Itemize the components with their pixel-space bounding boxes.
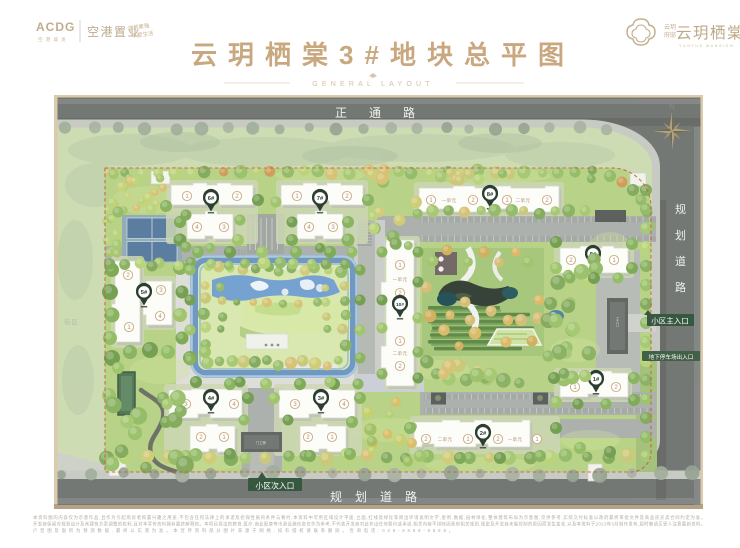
svg-text:本资料图的内容仅为示意作品,且作为引起购房者购置兴趣之用途,: 本资料图的内容仅为示意作品,且作为引起购房者购置兴趣之用途,不包含任何法律上的承… — [33, 514, 705, 521]
svg-text:淡然素雅: 淡然素雅 — [127, 21, 150, 32]
svg-text:YUNYUE MANSION: YUNYUE MANSION — [679, 44, 734, 48]
svg-text:ACDG: ACDG — [36, 20, 75, 34]
svg-text:云玥栖棠3#地块总平图: 云玥栖棠3#地块总平图 — [191, 40, 575, 70]
svg-text:云玥栖棠: 云玥栖棠 — [676, 24, 740, 42]
svg-text:云玥: 云玥 — [664, 24, 676, 31]
svg-text:空港城发: 空港城发 — [38, 36, 69, 43]
svg-text:GENERAL LAYOUT: GENERAL LAYOUT — [312, 81, 433, 88]
svg-text:开发商保留对规划设计及其建筑方案调整的权利,且对本宣传资料拥: 开发商保留对规划设计及其建筑方案调整的权利,且对本宣传资料拥有最终解释权。本项目… — [33, 521, 705, 528]
svg-text:户型图及面积为预测数据,最终以实测为准。本宣传资料部分图片来: 户型图及面积为预测数据,最终以实测为准。本宣传资料部分图片来源于网络,如有侵权请… — [33, 527, 453, 534]
svg-text:府邸: 府邸 — [664, 31, 676, 39]
